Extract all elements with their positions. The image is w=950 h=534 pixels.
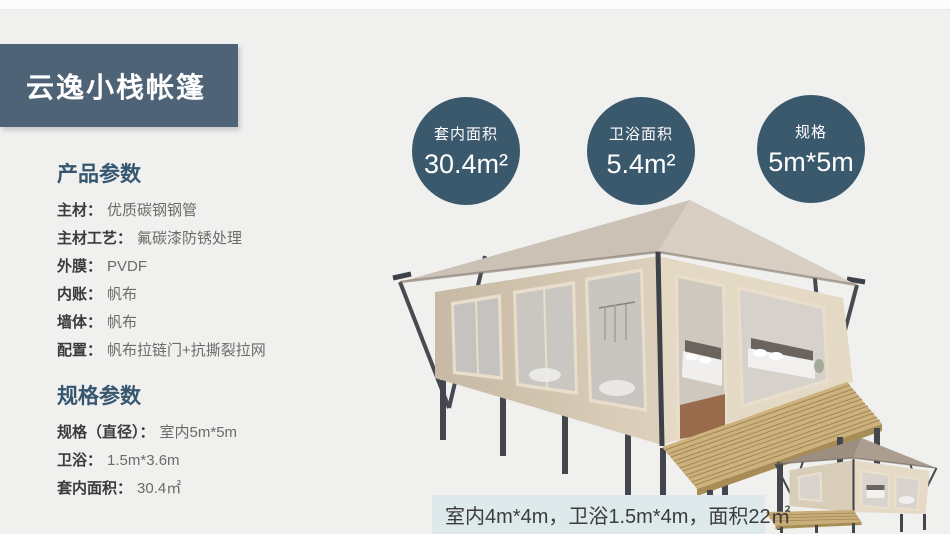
spec-label: 配置： (57, 342, 102, 359)
spec-label: 套内面积： (57, 480, 132, 497)
top-strip (0, 0, 950, 10)
badge-spec: 规格 5m*5m (757, 95, 865, 203)
spec-row: 卫浴：1.5m*3.6m (57, 447, 387, 475)
spec-value: 帆布 (107, 286, 137, 303)
spec-row: 主材：优质碳钢钢管 (57, 197, 387, 225)
title-plate: 云逸小栈帐篷 (0, 44, 238, 127)
badge-label: 套内面积 (434, 123, 498, 144)
spec-row: 内账：帆布 (57, 281, 387, 309)
badge-label: 规格 (795, 121, 827, 142)
spec-row: 墙体：帆布 (57, 309, 387, 337)
spec-label: 墙体： (57, 314, 102, 331)
spec-row: 规格（直径）：室内5m*5m (57, 419, 387, 447)
spec-label: 外膜： (57, 258, 102, 275)
page-title: 云逸小栈帐篷 (0, 66, 206, 106)
spec-value: 30.4㎡ (137, 480, 181, 497)
spec-label: 规格（直径）： (57, 424, 155, 441)
spec-value: 帆布拉链门+抗撕裂拉网 (107, 342, 266, 359)
spec-row: 主材工艺：氟碳漆防锈处理 (57, 225, 387, 253)
spec-value: 帆布 (107, 314, 137, 331)
badge-bath-area: 卫浴面积 5.4m² (587, 97, 695, 205)
section-heading-size: 规格参数 (57, 380, 387, 410)
spec-label: 主材： (57, 202, 102, 219)
spec-label: 内账： (57, 286, 102, 303)
spec-value: 氟碳漆防锈处理 (137, 230, 242, 247)
spec-value: PVDF (107, 258, 147, 275)
section-heading-product: 产品参数 (57, 158, 387, 188)
spec-row: 套内面积：30.4㎡ (57, 475, 387, 503)
spec-panel: 产品参数 主材：优质碳钢钢管 主材工艺：氟碳漆防锈处理 外膜：PVDF 内账：帆… (57, 158, 387, 503)
spec-row: 外膜：PVDF (57, 253, 387, 281)
spec-row: 配置：帆布拉链门+抗撕裂拉网 (57, 337, 387, 365)
badge-value: 30.4m² (424, 149, 508, 180)
badge-value: 5m*5m (768, 147, 854, 178)
badge-value: 5.4m² (606, 149, 675, 180)
spec-value: 优质碳钢钢管 (107, 202, 197, 219)
spec-label: 主材工艺： (57, 230, 132, 247)
spec-value: 室内5m*5m (160, 424, 238, 441)
badge-indoor-area: 套内面积 30.4m² (412, 97, 520, 205)
caption-bar: 室内4m*4m，卫浴1.5m*4m，面积22㎡ (432, 495, 765, 534)
spec-value: 1.5m*3.6m (107, 452, 180, 469)
caption-text: 室内4m*4m，卫浴1.5m*4m，面积22㎡ (432, 500, 791, 529)
badge-label: 卫浴面积 (609, 123, 673, 144)
spec-label: 卫浴： (57, 452, 102, 469)
